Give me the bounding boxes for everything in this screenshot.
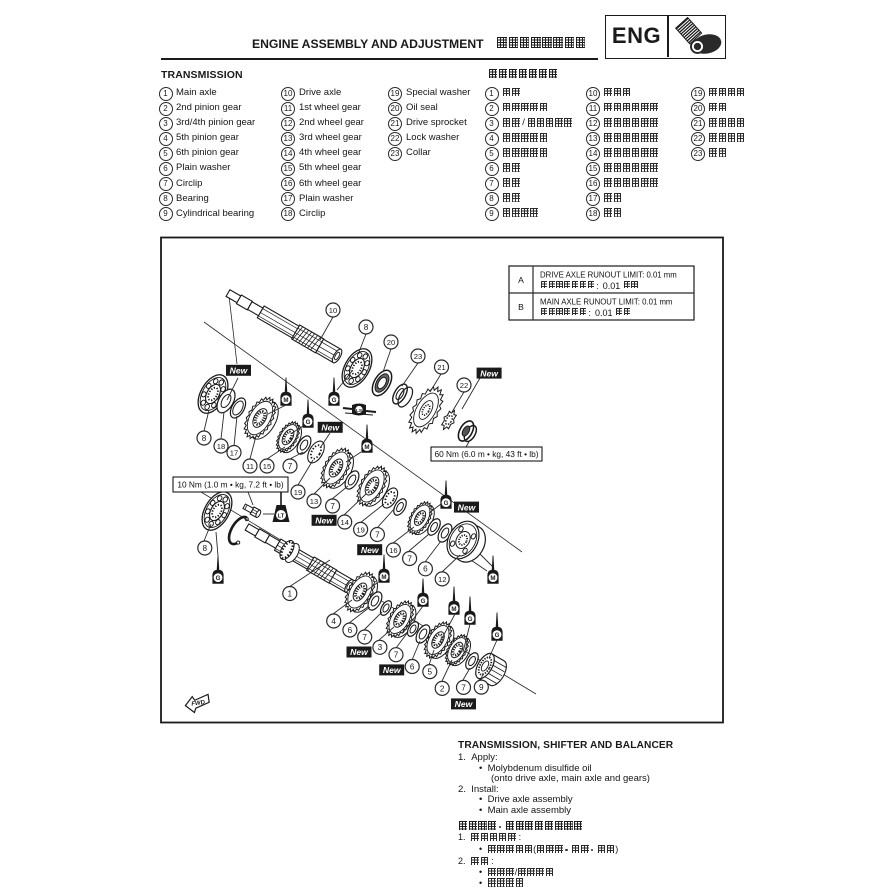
svg-text:G: G	[495, 632, 500, 639]
svg-text:G: G	[332, 397, 337, 404]
svg-text:5: 5	[428, 668, 433, 677]
svg-text:13: 13	[310, 497, 318, 506]
svg-text:10 Nm (1.0 m • kg, 7.2 ft • lb: 10 Nm (1.0 m • kg, 7.2 ft • lb)	[177, 480, 284, 490]
svg-text:20: 20	[387, 338, 395, 347]
svg-text:15: 15	[263, 462, 271, 471]
svg-text:21: 21	[437, 363, 445, 372]
svg-text:7: 7	[375, 530, 380, 539]
svg-text:6: 6	[423, 565, 428, 574]
svg-text:19: 19	[356, 525, 364, 534]
svg-text:8: 8	[203, 544, 208, 553]
svg-text:B: B	[518, 302, 524, 312]
svg-text:3: 3	[378, 643, 383, 652]
svg-text:New: New	[361, 545, 380, 555]
svg-text:New: New	[350, 647, 369, 657]
svg-text:New: New	[315, 516, 334, 526]
svg-text:LT: LT	[278, 513, 285, 519]
svg-text:2: 2	[440, 684, 445, 693]
svg-text:7: 7	[288, 462, 293, 471]
svg-text:A: A	[518, 275, 524, 285]
svg-text:7: 7	[407, 554, 412, 563]
svg-text:MAIN AXLE RUNOUT LIMIT: 0.01 m: MAIN AXLE RUNOUT LIMIT: 0.01 mm	[540, 298, 672, 307]
svg-text:M: M	[381, 574, 386, 581]
svg-text:8: 8	[202, 434, 207, 443]
svg-text:New: New	[455, 699, 474, 709]
svg-text:M: M	[364, 444, 369, 451]
svg-text:DRIVE AXLE RUNOUT LIMIT: 0.01: DRIVE AXLE RUNOUT LIMIT: 0.01 mm	[540, 271, 677, 280]
svg-text:12: 12	[438, 575, 446, 584]
svg-text:7: 7	[461, 683, 466, 692]
svg-text:60 Nm (6.0 m • kg, 43 ft • lb): 60 Nm (6.0 m • kg, 43 ft • lb)	[434, 449, 538, 459]
svg-text:G: G	[216, 575, 221, 582]
svg-text:22: 22	[460, 381, 468, 390]
svg-text:18: 18	[217, 442, 225, 451]
svg-text:6: 6	[348, 626, 353, 635]
svg-text:7: 7	[330, 502, 335, 511]
svg-text:FWD: FWD	[191, 700, 206, 708]
svg-text:G: G	[306, 419, 311, 426]
svg-text:New: New	[383, 665, 402, 675]
svg-text:19: 19	[294, 488, 302, 497]
svg-text:7: 7	[394, 651, 399, 660]
svg-text:M: M	[283, 397, 288, 404]
svg-text:4: 4	[331, 617, 336, 626]
svg-text:M: M	[451, 606, 456, 613]
svg-text:M: M	[490, 575, 495, 582]
svg-text:6: 6	[410, 662, 415, 671]
svg-text:7: 7	[362, 633, 367, 642]
svg-text:G: G	[421, 598, 426, 605]
svg-text:8: 8	[364, 323, 369, 332]
svg-text:17: 17	[230, 448, 238, 457]
svg-text:G: G	[444, 500, 449, 507]
svg-text:New: New	[458, 502, 477, 512]
svg-text:10: 10	[329, 306, 337, 315]
svg-text:LS: LS	[356, 408, 363, 414]
svg-text:G: G	[468, 616, 473, 623]
svg-text:New: New	[321, 423, 340, 433]
svg-text:11: 11	[246, 462, 254, 471]
svg-text:New: New	[230, 366, 249, 376]
svg-text:16: 16	[389, 546, 397, 555]
svg-text:9: 9	[479, 683, 484, 692]
svg-text:New: New	[480, 368, 499, 378]
svg-text:23: 23	[414, 352, 422, 361]
svg-text:14: 14	[340, 518, 348, 527]
svg-text:1: 1	[288, 589, 293, 598]
